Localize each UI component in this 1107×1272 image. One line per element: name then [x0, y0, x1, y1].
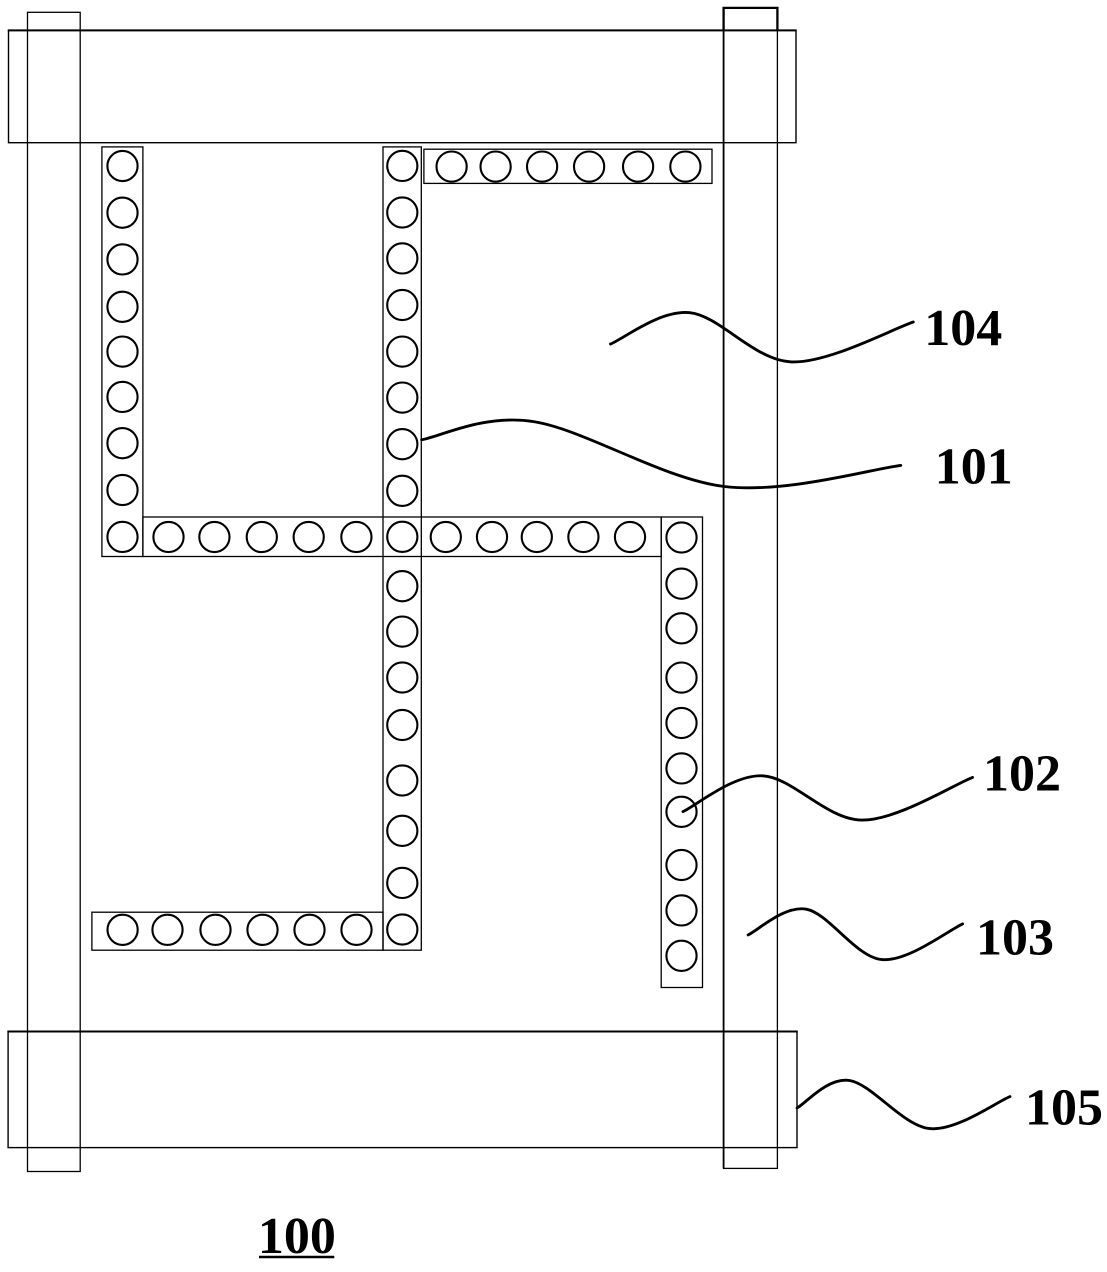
svg-text:103: 103 — [976, 910, 1054, 967]
svg-text:102: 102 — [983, 746, 1061, 803]
svg-text:101: 101 — [935, 439, 1013, 496]
svg-text:104: 104 — [924, 300, 1002, 357]
svg-text:105: 105 — [1025, 1080, 1103, 1137]
